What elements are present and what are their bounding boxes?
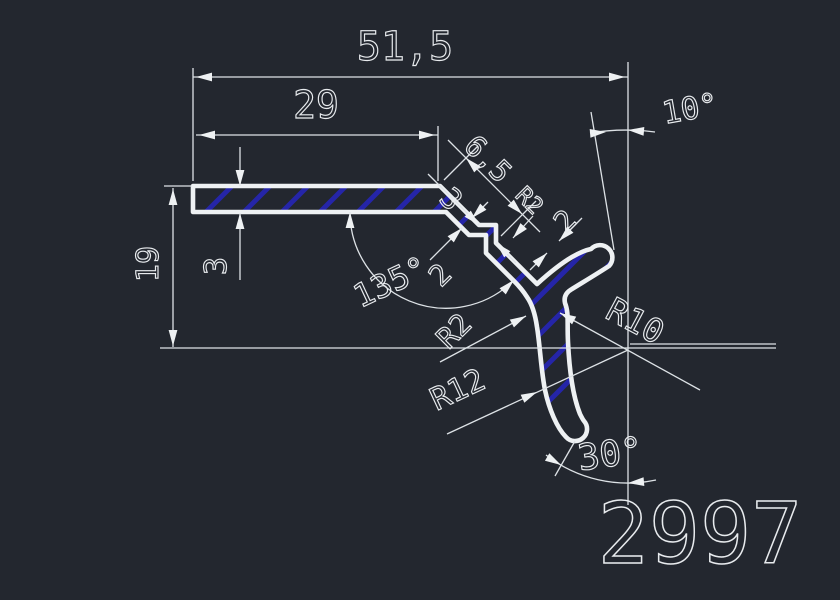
dim-flange-width-label: 29 [293,83,339,127]
dim-step-radius-label: R2 [510,182,548,220]
dim-step-width-label: 6,5 [458,128,519,189]
cad-drawing: 51,5 29 19 3 135° 6,5 3 2 2 R2 R2 R10 R1… [0,0,840,600]
dim-flange-thickness-label: 3 [199,257,234,275]
dimension-labels: 51,5 29 19 3 135° 6,5 3 2 2 R2 R2 R10 R1… [131,24,721,479]
dim-hook-radius-label: R12 [425,362,491,418]
cad-drawing-canvas: 51,5 29 19 3 135° 6,5 3 2 2 R2 R2 R10 R1… [0,0,840,600]
dim-arm-radius-label: R10 [600,290,671,352]
dim-bend-angle-label: 135° [347,249,433,316]
profile-outline [193,186,612,441]
dim-arm-thickness-label: 2 [547,203,583,239]
part-number: 2997 [598,485,803,584]
dim-height-label: 19 [131,246,166,282]
dim-top-angle-label: 10° [660,87,721,132]
dim-total-width-label: 51,5 [357,24,453,70]
dim-hook-angle-label: 30° [575,430,645,480]
dim-web-thickness-label: 2 [422,257,458,293]
